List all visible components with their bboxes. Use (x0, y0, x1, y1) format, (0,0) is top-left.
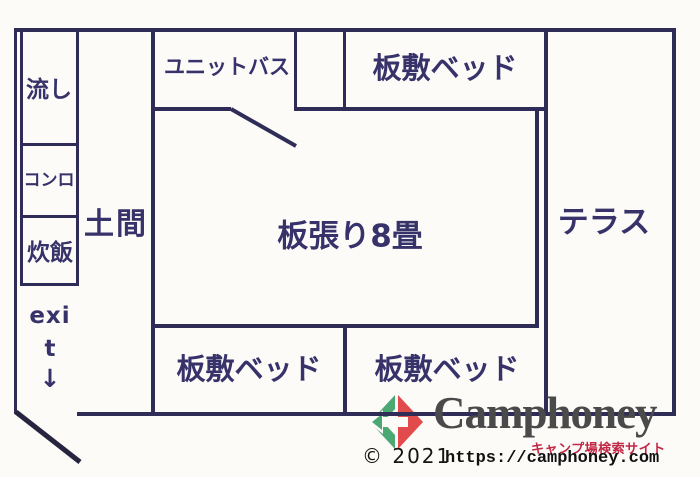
label-terrace: テラス (558, 197, 650, 242)
exit-door-swing-line (16, 412, 80, 462)
label-bed-bottom-right: 板敷ベッド (374, 346, 519, 388)
label-bed-bottom-left: 板敷ベッド (176, 346, 321, 388)
copyright-text: © 2021 (362, 444, 451, 468)
camphoney-url: https://camphoney.com (445, 449, 659, 468)
exit-down-arrow-icon: ↓ (40, 369, 61, 389)
label-unit-bath: ユニットバス (164, 51, 290, 81)
bath-door-swing-line (231, 109, 296, 146)
floorplan-canvas: 流し コンロ 炊飯 土間 ユニットバス 板敷ベッド 板張り8畳 テラス 板敷ベッ… (0, 0, 700, 477)
label-stove: コンロ (24, 166, 75, 191)
exit-annotation: exi t ↓ (27, 303, 73, 389)
camphoney-wordmark: Camphoney (433, 391, 657, 436)
label-rice-cooker: 炊飯 (27, 233, 73, 267)
label-sink: 流し (26, 70, 72, 104)
exit-text-line2: t (45, 336, 56, 362)
label-doma: 土間 (84, 199, 148, 243)
label-bed-top: 板敷ベッド (372, 45, 517, 87)
label-main-room: 板張り8畳 (277, 211, 423, 256)
exit-text-line1: exi (29, 303, 70, 329)
